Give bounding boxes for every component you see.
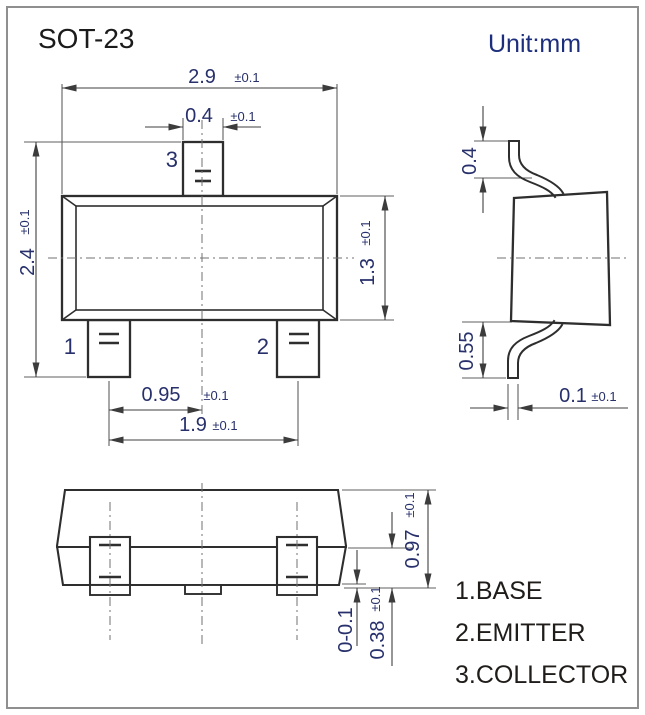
dim-pitch-tol: ±0.1: [212, 418, 237, 433]
dim-foot-value: 0.38: [367, 621, 389, 660]
dim-total-height-value: 2.4: [17, 248, 39, 276]
dim-tab-width-tol: ±0.1: [230, 109, 255, 124]
pin-function-collector: 3.COLLECTOR: [455, 661, 628, 689]
front-pin2-lead: [277, 320, 319, 377]
unit-label: Unit:mm: [488, 30, 581, 58]
dim-standoff-value: 0-0.1: [335, 607, 357, 653]
bottom-pin3-foot: [185, 585, 221, 594]
dim-pitch-value: 1.9: [179, 414, 207, 436]
drawing-page: SOT-23 Unit:mm: [0, 0, 645, 715]
front-pin1-lead: [88, 320, 130, 377]
dim-height-tol: ±0.1: [402, 492, 417, 517]
dim-total-height-tol: ±0.1: [17, 209, 32, 234]
dim-body-height-tol: ±0.1: [358, 220, 373, 245]
dim-lead-thickness-tol: ±0.1: [591, 389, 616, 404]
front-pin3-lead: [183, 142, 223, 196]
dim-lead-thickness-value: 0.1: [559, 385, 587, 407]
dim-body-height-value: 1.3: [357, 258, 379, 286]
dim-bottom-lead-value: 0.55: [456, 332, 478, 371]
dim-body-width-tol: ±0.1: [234, 70, 259, 85]
pin2-number: 2: [257, 334, 269, 359]
pin-function-base: 1.BASE: [455, 577, 543, 605]
dim-half-pitch-tol: ±0.1: [203, 388, 228, 403]
dim-body-width-value: 2.9: [188, 66, 216, 88]
dim-half-pitch-value: 0.95: [142, 384, 181, 406]
package-title: SOT-23: [38, 23, 134, 54]
pin1-number: 1: [64, 334, 76, 359]
dim-foot-tol: ±0.1: [368, 586, 383, 611]
dim-top-lead-value: 0.4: [459, 147, 481, 175]
pin3-number: 3: [166, 147, 178, 172]
sot23-drawing: SOT-23 Unit:mm: [0, 0, 645, 715]
dim-height-value: 0.97: [402, 530, 424, 569]
pin-function-emitter: 2.EMITTER: [455, 619, 586, 647]
dim-tab-width-value: 0.4: [185, 105, 213, 127]
